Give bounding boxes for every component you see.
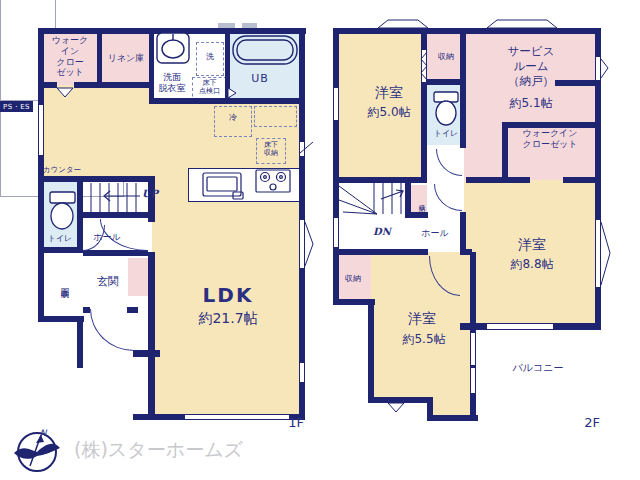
label-toilet-1f: トイレ — [41, 234, 79, 244]
bathroom-sink-icon — [157, 33, 189, 63]
label-floor-2f: 2F — [578, 415, 606, 431]
opening-triangle-icon — [57, 88, 404, 412]
label-tenkenko-1f: 床下 点検口 — [192, 79, 227, 96]
label-y50-name: 洋室 — [362, 84, 416, 101]
label-counter-1f: カウンター — [36, 165, 88, 174]
label-balcony-2f: バルコニー — [505, 362, 571, 374]
vent-tab-icon — [218, 23, 257, 28]
label-yukashita-1f: 床下 収納 — [256, 141, 286, 158]
compass-north-label: N — [36, 428, 50, 439]
label-shuno-mid-2f: 収納 — [410, 188, 425, 212]
label-service-name: サービス ルーム （納戸） — [490, 44, 572, 89]
stairs-2f — [339, 183, 401, 214]
label-wic-1f: ウォーク イン クロー ゼット — [40, 35, 100, 78]
label-dn-2f: DN — [368, 226, 396, 238]
label-shuno-left-2f: 収納 — [334, 274, 372, 284]
label-doma-1f: 土間収納 — [53, 260, 69, 306]
roof-vent-icon — [378, 20, 557, 28]
stairs-1f — [91, 183, 136, 212]
label-y55-name: 洋室 — [392, 310, 452, 327]
label-wic-2f: ウォークイン クローゼット — [505, 128, 595, 150]
label-ub-1f: UB — [240, 72, 280, 85]
label-ldk-name: LDK — [180, 283, 276, 307]
label-hall-2f: ホール — [413, 228, 457, 239]
label-ldk-size: 約21.7帖 — [180, 310, 276, 327]
label-washer-1f: 洗 — [196, 52, 224, 62]
label-y50-size: 約5.0帖 — [354, 105, 424, 119]
label-genkan-1f: 玄関 — [88, 275, 128, 288]
toilet-icon-2f — [434, 92, 458, 125]
label-y55-size: 約5.5帖 — [392, 332, 456, 346]
label-senmen-1f: 洗面 脱衣室 — [152, 72, 192, 94]
stove-icon — [256, 170, 290, 192]
kitchen-sink-icon — [203, 173, 243, 199]
label-linen-1f: リネン庫 — [100, 53, 152, 64]
bathtub-icon — [233, 36, 297, 64]
label-hall-1f: ホール — [86, 232, 128, 243]
label-service-size: 約5.1帖 — [490, 96, 572, 110]
toilet-icon-1f — [50, 192, 75, 229]
label-toilet-2f: トイレ — [427, 129, 465, 139]
label-rei-1f: 冷 — [214, 113, 252, 123]
label-shuno-top-2f: 収納 — [427, 52, 465, 62]
company-name: (株)スターホームズ — [74, 438, 294, 461]
label-up-1f: UP — [138, 188, 162, 200]
label-y88-size: 約8.8帖 — [500, 257, 564, 271]
label-floor-1f: 1F — [282, 415, 310, 431]
label-y88-name: 洋室 — [504, 236, 560, 253]
floor-plan: PS・ES — [0, 0, 640, 480]
